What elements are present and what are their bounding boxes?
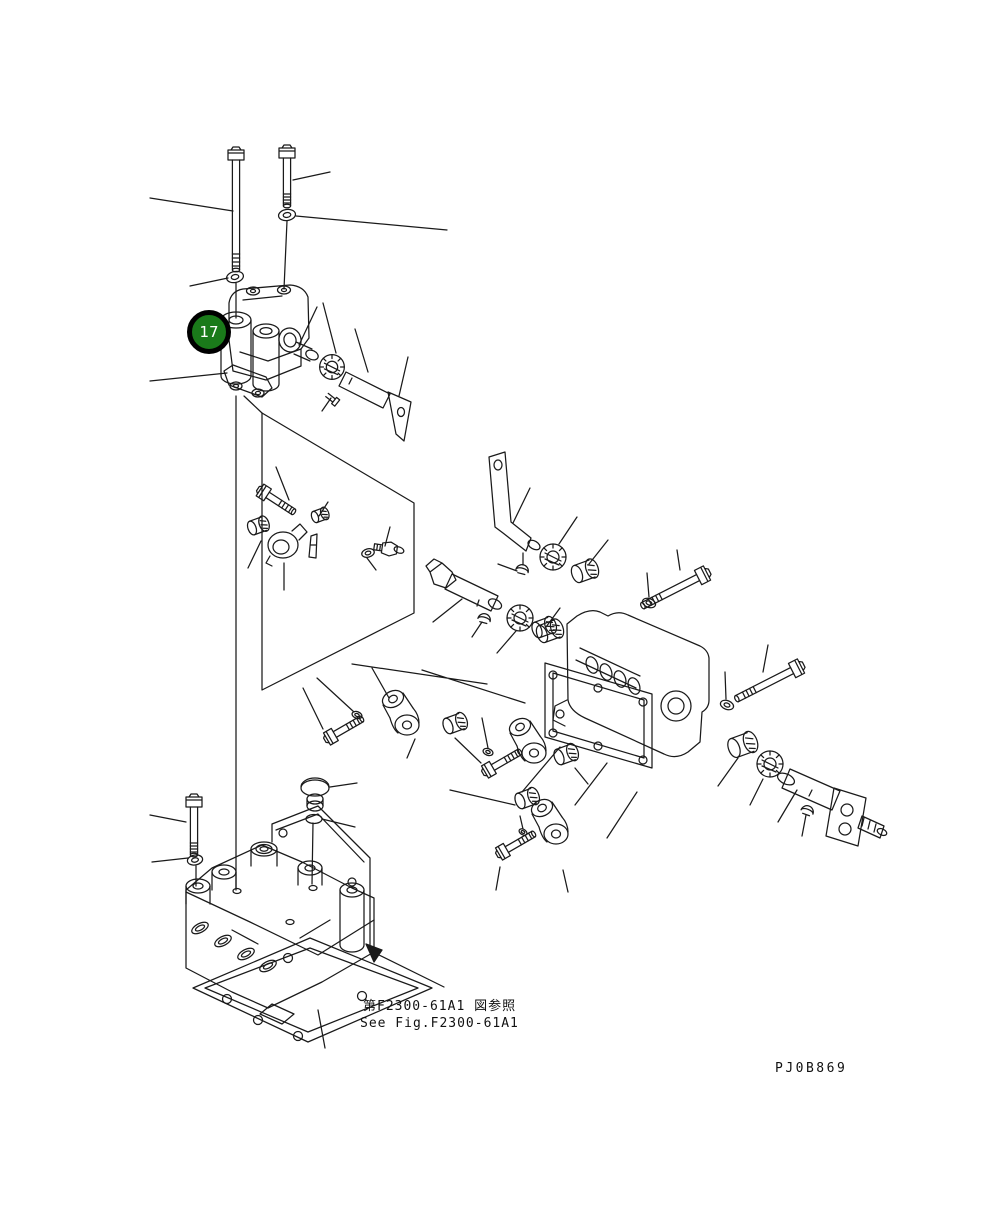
- roller-cap-a: [441, 711, 470, 736]
- rocker-bolt-c: [493, 827, 538, 861]
- cover-lever-shaft: [339, 372, 411, 441]
- callout-badge[interactable]: 17: [187, 310, 231, 354]
- splined-shaft: [776, 769, 888, 846]
- body-bolt: [186, 794, 202, 857]
- washer-top-short: [278, 208, 296, 221]
- reference-caption-jp: 第F2300-61A1 図参照: [363, 995, 516, 1014]
- seal-disc: [757, 751, 783, 777]
- rear-mounting-plate: [272, 806, 370, 950]
- mounting-bolt-2: [732, 658, 808, 707]
- top-bolt-long: [228, 147, 244, 272]
- callout-number: 17: [199, 323, 218, 341]
- woodruff-key-1: [515, 563, 530, 575]
- woodruff-key-3: [800, 804, 815, 817]
- retainer-bushing: [725, 729, 760, 760]
- body-washer: [187, 854, 204, 866]
- detail-washer: [361, 547, 375, 558]
- parts-diagram-page: 17 第F2300-61A1 図参照 See Fig.F2300-61A1 PJ…: [0, 0, 1008, 1224]
- detail-view-panel: [246, 413, 414, 690]
- exploded-view-drawing: [0, 0, 1008, 1224]
- plug-knob: [301, 778, 329, 824]
- detail-bolt: [254, 483, 299, 519]
- reference-caption-en: See Fig.F2300-61A1: [360, 1016, 519, 1031]
- washer-top-long: [226, 270, 245, 284]
- cam-lever: [266, 524, 317, 566]
- housing: [553, 611, 709, 757]
- rocker-washer-a: [351, 710, 363, 720]
- rocker-bolt-a: [321, 712, 366, 746]
- needle-bearing-1: [540, 544, 566, 570]
- cover-seal-bearing: [320, 355, 345, 380]
- rocker-washer-c: [518, 827, 528, 836]
- woodruff-key-2: [477, 612, 492, 624]
- main-valve-body: [186, 842, 374, 1008]
- top-bolt-short: [279, 145, 295, 208]
- drawing-code: PJ0B869: [775, 1061, 847, 1076]
- valve-cover-assembly: [221, 285, 340, 406]
- detail-bushing: [246, 514, 272, 536]
- rocker-assembly-a: [380, 687, 419, 735]
- grease-fitting: [373, 540, 405, 557]
- leader-lines: [150, 172, 806, 1048]
- rocker-washer-b: [482, 747, 494, 757]
- bushing-1: [569, 557, 601, 585]
- reference-arrow: [366, 944, 382, 962]
- washer-right-2: [719, 699, 735, 712]
- bracket-lever: [489, 452, 542, 552]
- needle-bearing-2: [507, 605, 533, 631]
- lever-with-shaft: [426, 559, 503, 611]
